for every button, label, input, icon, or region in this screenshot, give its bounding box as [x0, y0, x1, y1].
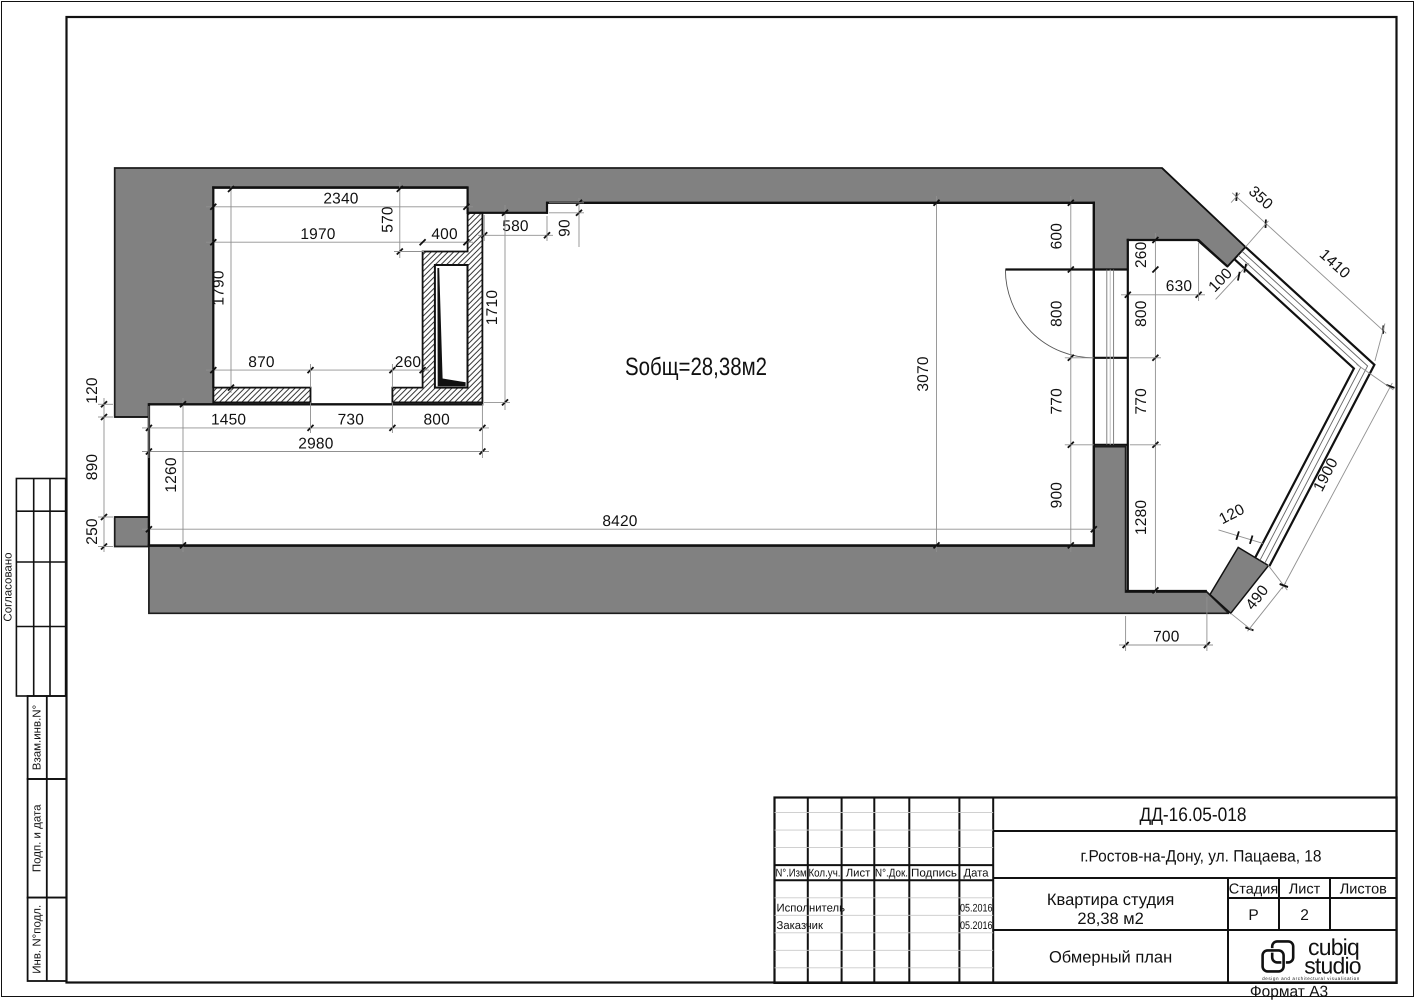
svg-text:Согласовано: Согласовано: [3, 552, 15, 621]
svg-text:1260: 1260: [163, 457, 180, 492]
svg-text:Стадия: Стадия: [1229, 882, 1278, 898]
svg-text:N°.Изм: N°.Изм: [776, 868, 807, 880]
svg-text:1970: 1970: [300, 226, 335, 243]
svg-text:260: 260: [1133, 241, 1150, 268]
svg-text:120: 120: [84, 377, 101, 404]
svg-text:05.2016: 05.2016: [960, 920, 993, 932]
svg-text:400: 400: [431, 226, 458, 243]
svg-text:Лист: Лист: [1289, 882, 1321, 898]
svg-text:870: 870: [248, 354, 275, 371]
svg-text:Sобщ=28,38м2: Sобщ=28,38м2: [625, 353, 767, 381]
svg-text:600: 600: [1048, 223, 1065, 250]
svg-text:studio: studio: [1304, 953, 1361, 979]
svg-text:Квартира студия: Квартира студия: [1047, 891, 1174, 909]
svg-text:Дата: Дата: [963, 868, 989, 880]
svg-text:N°.Док.: N°.Док.: [875, 868, 908, 880]
svg-text:570: 570: [379, 206, 396, 233]
svg-text:3070: 3070: [915, 356, 932, 391]
svg-text:2980: 2980: [298, 435, 333, 452]
svg-text:90: 90: [557, 219, 574, 237]
svg-text:770: 770: [1133, 388, 1150, 415]
svg-text:Лист: Лист: [846, 868, 871, 880]
svg-text:1280: 1280: [1133, 500, 1150, 535]
svg-text:1790: 1790: [211, 270, 228, 305]
svg-text:Инв. N°подл.: Инв. N°подл.: [32, 905, 44, 974]
svg-text:28,38 м2: 28,38 м2: [1077, 910, 1143, 928]
svg-text:Листов: Листов: [1340, 882, 1387, 898]
svg-text:630: 630: [1166, 278, 1193, 295]
svg-text:1450: 1450: [211, 412, 246, 429]
svg-text:260: 260: [395, 354, 422, 371]
svg-text:Взам.инв.N°: Взам.инв.N°: [32, 705, 44, 770]
svg-text:900: 900: [1048, 482, 1065, 509]
svg-text:770: 770: [1048, 388, 1065, 415]
svg-text:800: 800: [423, 412, 450, 429]
svg-text:730: 730: [338, 412, 365, 429]
svg-text:Подпись: Подпись: [911, 868, 957, 880]
svg-text:ДД-16.05-018: ДД-16.05-018: [1140, 804, 1247, 826]
svg-text:г.Ростов-на-Дону, ул. Пацаева: г.Ростов-на-Дону, ул. Пацаева, 18: [1081, 848, 1322, 866]
svg-text:Кол.уч.: Кол.уч.: [809, 868, 841, 880]
svg-text:580: 580: [502, 218, 529, 235]
svg-text:8420: 8420: [602, 513, 637, 530]
svg-text:05.2016: 05.2016: [960, 903, 993, 915]
svg-text:Заказчик: Заказчик: [777, 920, 823, 932]
svg-text:2: 2: [1300, 907, 1309, 924]
svg-text:250: 250: [84, 518, 101, 545]
svg-text:890: 890: [84, 454, 101, 481]
svg-text:1710: 1710: [484, 290, 501, 325]
svg-text:Обмерный план: Обмерный план: [1049, 949, 1172, 967]
svg-text:Подп. и дата: Подп. и дата: [32, 804, 44, 872]
svg-text:Р: Р: [1248, 907, 1258, 924]
svg-text:700: 700: [1153, 628, 1180, 645]
svg-text:800: 800: [1048, 300, 1065, 327]
svg-text:Исполнитель: Исполнитель: [777, 903, 846, 915]
svg-text:design and architectural visua: design and architectural visualisation: [1262, 976, 1360, 981]
svg-text:2340: 2340: [323, 191, 358, 208]
svg-text:Формат А3: Формат А3: [1250, 984, 1328, 1000]
svg-text:800: 800: [1133, 300, 1150, 327]
